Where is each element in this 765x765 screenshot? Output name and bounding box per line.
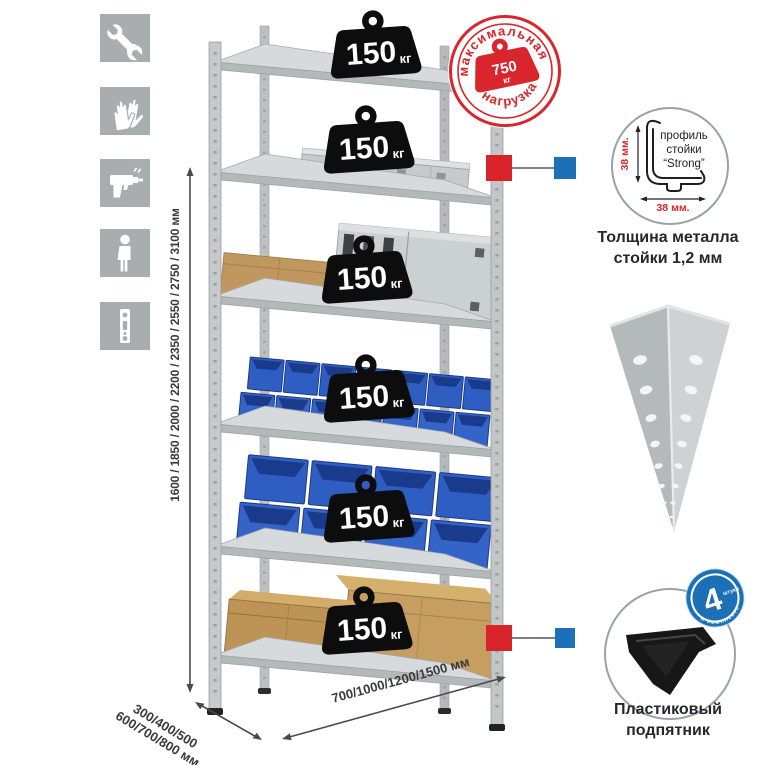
thickness-caption: Толщина металла стойки 1,2 мм [578,228,758,270]
svg-text:кг: кг [392,514,406,530]
drill-icon [100,159,150,207]
svg-text:150: 150 [336,261,388,297]
svg-text:150: 150 [338,380,390,416]
gloves-icon [100,87,150,135]
callout-profile [486,155,576,181]
svg-text:38 мм.: 38 мм. [619,137,631,170]
kit-quantity-badge: 4 штуки в комплекте [684,567,746,629]
max-load-stamp: максимальная нагрузка 750 кг [437,3,572,138]
foot-caption: Пластиковый подпятник [583,700,753,742]
svg-text:“Strong”: “Strong” [663,158,705,170]
svg-text:150: 150 [345,36,397,72]
shelf-load-badge: 150 кг [327,10,422,79]
svg-text:38 мм.: 38 мм. [656,202,689,214]
svg-text:стойки: стойки [666,144,701,156]
wrench-icon [100,14,150,62]
angle-post-image [596,298,748,538]
svg-text:кг: кг [392,145,406,161]
foot-caption-line2: подпятник [583,721,753,742]
depth-dimension-line [195,702,262,740]
svg-text:150: 150 [336,612,388,648]
person-icon [100,229,150,277]
foot-caption-line1: Пластиковый [583,700,753,721]
shelf-load-badge: 150 кг [320,105,415,174]
svg-text:150: 150 [338,131,390,167]
svg-text:кг: кг [392,394,406,410]
thickness-caption-line2: стойки 1,2 мм [578,249,758,270]
height-dimension-line [187,167,194,693]
perforated-strip-icon [100,302,150,350]
svg-text:150: 150 [338,500,390,536]
page: 150 кг 150 кг 150 кг 150 кг 150 кг 150 к… [0,0,765,765]
thickness-caption-line1: Толщина металла [578,228,758,249]
profile-detail-circle: 38 мм. 38 мм. профиль стойки “Strong” [611,107,729,225]
svg-text:кг: кг [399,50,413,66]
profile-cross-section: 38 мм. 38 мм. профиль стойки “Strong” [613,109,723,219]
svg-text:кг: кг [390,275,404,291]
svg-text:кг: кг [390,626,404,642]
svg-text:профиль: профиль [660,130,708,142]
height-dimension-label: 1600 / 1850 / 2000 / 2200 / 2350 / 2550 … [168,208,182,501]
